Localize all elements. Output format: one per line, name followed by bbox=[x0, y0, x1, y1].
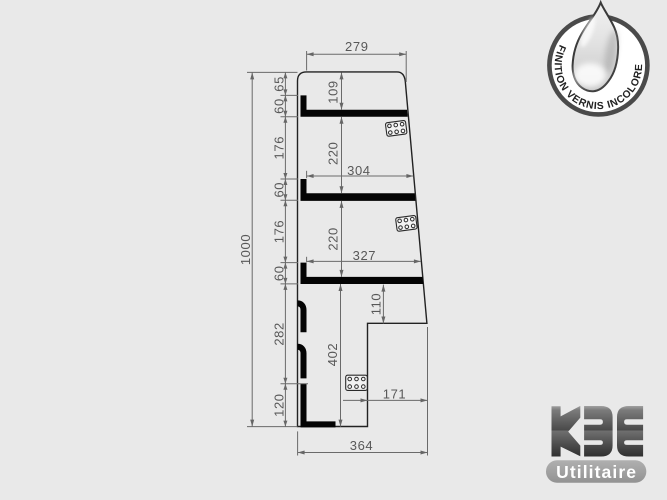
svg-text:60: 60 bbox=[271, 98, 286, 114]
svg-text:282: 282 bbox=[271, 322, 286, 346]
svg-text:304: 304 bbox=[347, 163, 371, 178]
svg-text:402: 402 bbox=[325, 343, 340, 367]
svg-text:65: 65 bbox=[271, 76, 286, 92]
svg-text:171: 171 bbox=[383, 387, 407, 402]
svg-text:1000: 1000 bbox=[238, 234, 253, 265]
svg-text:220: 220 bbox=[326, 142, 341, 166]
svg-text:60: 60 bbox=[271, 182, 286, 198]
svg-text:109: 109 bbox=[325, 80, 340, 104]
svg-text:279: 279 bbox=[345, 39, 369, 54]
svg-text:Utilitaire: Utilitaire bbox=[556, 462, 637, 482]
svg-text:327: 327 bbox=[353, 248, 377, 263]
svg-text:176: 176 bbox=[271, 220, 286, 244]
svg-text:110: 110 bbox=[369, 293, 384, 316]
svg-text:60: 60 bbox=[271, 265, 286, 281]
svg-text:120: 120 bbox=[271, 393, 286, 417]
svg-text:176: 176 bbox=[271, 136, 286, 160]
svg-text:220: 220 bbox=[326, 227, 341, 251]
svg-text:364: 364 bbox=[350, 438, 374, 453]
